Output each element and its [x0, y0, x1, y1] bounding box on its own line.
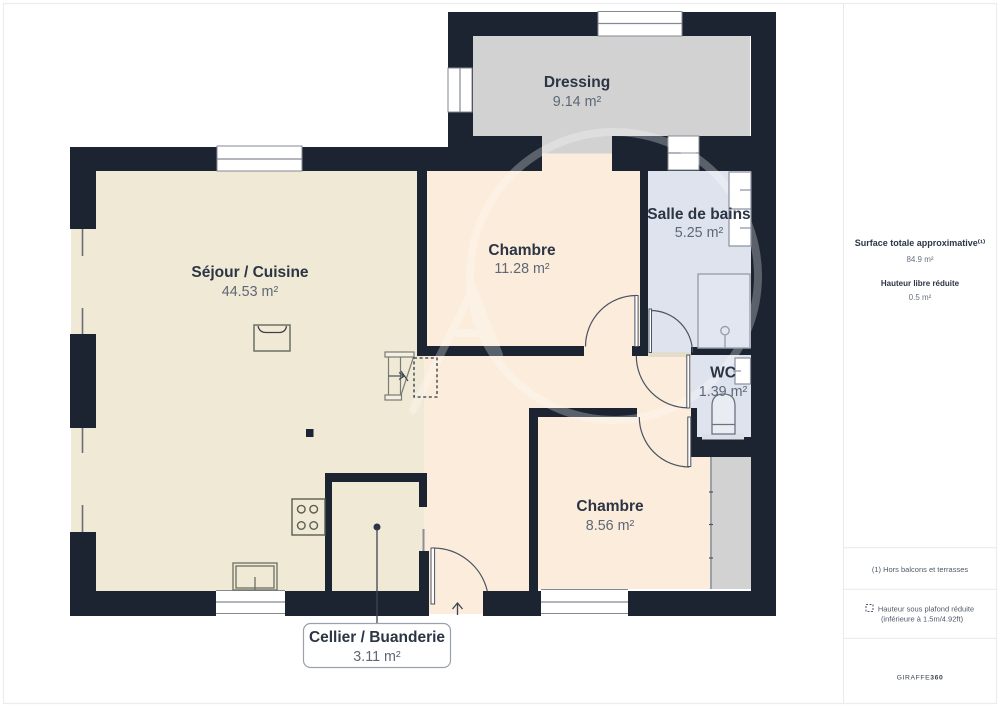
svg-text:5.25 m²: 5.25 m² — [675, 225, 724, 241]
svg-text:GIRAFFE360: GIRAFFE360 — [897, 675, 944, 682]
svg-text:Salle de bains: Salle de bains — [647, 206, 750, 223]
svg-text:Dressing: Dressing — [544, 74, 610, 91]
svg-text:Hauteur sous plafond réduite: Hauteur sous plafond réduite — [878, 605, 974, 614]
svg-text:(1) Hors balcons et terrasses: (1) Hors balcons et terrasses — [872, 565, 969, 574]
svg-text:0.5 m²: 0.5 m² — [909, 293, 932, 302]
svg-text:11.28 m²: 11.28 m² — [494, 261, 550, 277]
svg-text:(inférieure à 1.5m/4.92ft): (inférieure à 1.5m/4.92ft) — [881, 615, 964, 624]
svg-text:Cellier / Buanderie: Cellier / Buanderie — [309, 629, 445, 646]
svg-text:Chambre: Chambre — [576, 498, 644, 515]
svg-text:9.14 m²: 9.14 m² — [553, 94, 602, 110]
svg-text:WC: WC — [710, 365, 736, 382]
svg-text:Séjour / Cuisine: Séjour / Cuisine — [191, 264, 309, 281]
svg-text:8.56 m²: 8.56 m² — [586, 518, 635, 534]
svg-text:3.11 m²: 3.11 m² — [353, 649, 401, 665]
svg-text:84.9 m²: 84.9 m² — [906, 255, 933, 264]
svg-text:Hauteur libre réduite: Hauteur libre réduite — [881, 279, 960, 288]
svg-text:Chambre: Chambre — [488, 242, 556, 259]
svg-text:44.53 m²: 44.53 m² — [222, 284, 279, 300]
svg-text:Surface totale approximative⁽¹: Surface totale approximative⁽¹⁾ — [855, 238, 985, 248]
svg-text:1.39 m²: 1.39 m² — [699, 384, 748, 400]
